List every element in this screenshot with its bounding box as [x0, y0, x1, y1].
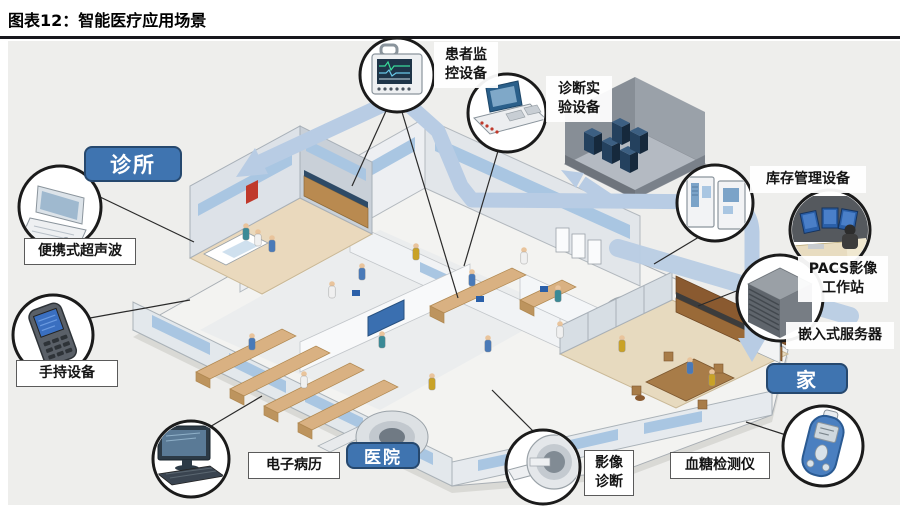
zone-tag-clinic: 诊所	[84, 146, 182, 182]
device-label-inventory: 库存管理设备	[750, 166, 866, 193]
device-label-embedded-server: 嵌入式服务器	[786, 322, 894, 349]
device-label-handheld: 手持设备	[16, 360, 118, 387]
hospital-building-illustration	[133, 77, 788, 493]
device-label-diagnostic-lab: 诊断实验设备	[546, 76, 612, 122]
zone-tag-home: 家	[766, 363, 848, 394]
patient-monitor-icon	[360, 38, 434, 112]
device-label-imaging-diagnosis: 影像诊断	[584, 450, 634, 496]
inventory-cabinets-icon	[677, 165, 753, 241]
device-label-patient-monitor: 患者监控设备	[434, 42, 498, 88]
device-label-pacs-workstation: PACS影像工作站	[798, 256, 888, 302]
zone-tag-hospital: 医院	[346, 442, 420, 469]
glucose-meter-icon	[783, 406, 863, 486]
emr-computer-icon	[153, 421, 229, 497]
device-label-emr: 电子病历	[248, 452, 340, 479]
device-label-portable-ultrasound: 便携式超声波	[24, 238, 136, 265]
figure-stage: 图表12：智能医疗应用场景	[0, 0, 900, 512]
mri-scanner-icon	[506, 430, 581, 504]
device-label-glucose-meter: 血糖检测仪	[670, 452, 770, 479]
